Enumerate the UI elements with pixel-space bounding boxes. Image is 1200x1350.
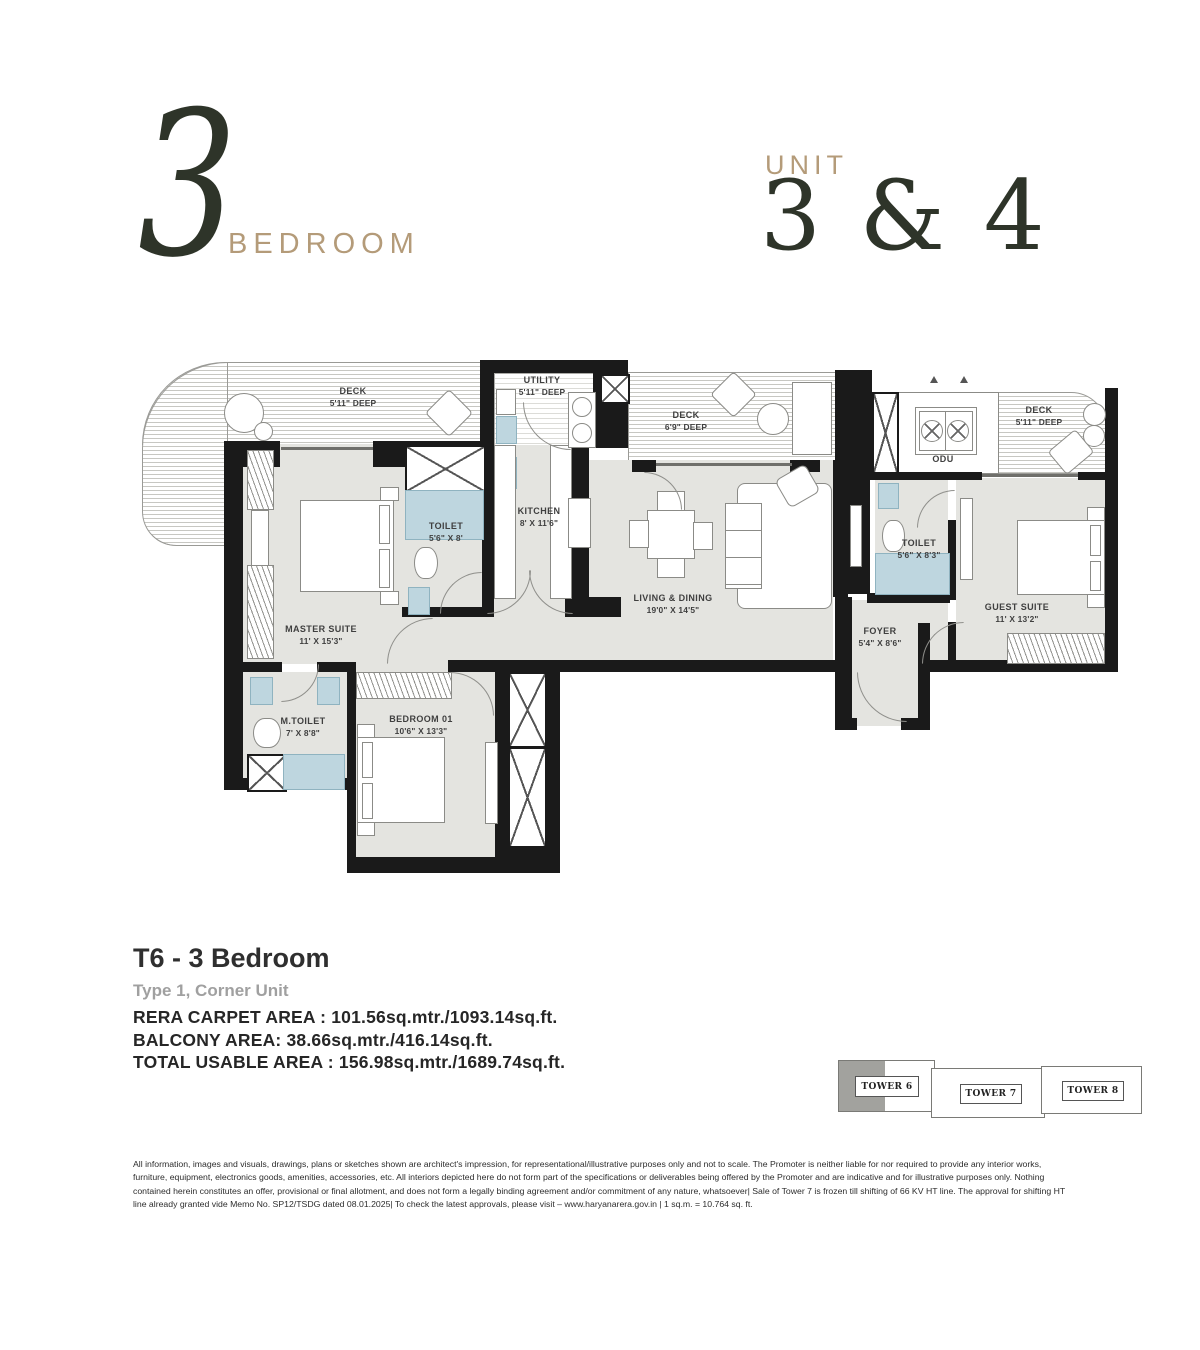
room-label-living-dining: LIVING & DINING19'0" X 14'5" xyxy=(633,593,712,616)
furniture xyxy=(629,520,649,548)
vent-arrow-icon xyxy=(930,376,938,383)
legal-disclaimer: All information, images and visuals, dra… xyxy=(133,1158,1073,1212)
floor-plan: DECK5'11" DEEPUTILITY5'11" DEEPDECK6'9" … xyxy=(140,360,1122,876)
pillow xyxy=(1090,561,1101,592)
area-statement: RERA CARPET AREA : 101.56sq.mtr./1093.14… xyxy=(133,1006,565,1074)
wall xyxy=(1105,388,1118,672)
window-line xyxy=(281,447,373,450)
furniture xyxy=(568,498,591,548)
bed xyxy=(1017,520,1105,595)
shaft-box xyxy=(247,754,287,792)
window-line xyxy=(656,463,792,466)
furniture xyxy=(850,505,862,567)
wall xyxy=(833,460,848,597)
tower-8-footprint: TOWER 8 xyxy=(1041,1066,1142,1114)
furniture xyxy=(251,510,269,566)
big-number-3: 3 xyxy=(138,86,237,286)
furniture xyxy=(657,558,685,578)
room-label-bedroom-01: BEDROOM 0110'6" X 13'3" xyxy=(389,714,453,737)
tower-7-footprint: TOWER 7 xyxy=(931,1068,1045,1118)
plant-or-table xyxy=(1083,403,1106,426)
nightstand xyxy=(380,487,399,501)
wall xyxy=(448,660,497,672)
wall xyxy=(950,472,982,480)
wall xyxy=(835,370,872,473)
nightstand xyxy=(357,822,375,836)
nightstand xyxy=(357,724,375,738)
furniture xyxy=(693,522,713,550)
unit-title: T6 - 3 Bedroom xyxy=(133,943,330,974)
furniture xyxy=(485,742,498,824)
fan-icon xyxy=(947,420,969,442)
tower-8-label: TOWER 8 xyxy=(1062,1081,1124,1101)
washer-drum xyxy=(572,397,592,417)
shaft-box xyxy=(508,672,547,748)
wet-area xyxy=(496,416,517,444)
wet-area xyxy=(878,483,899,509)
room-label-utility: UTILITY5'11" DEEP xyxy=(519,375,566,398)
tower-key-plan: TOWER 6 TOWER 7 TOWER 8 xyxy=(838,1056,1140,1122)
nightstand xyxy=(380,591,399,605)
furniture xyxy=(496,389,516,415)
wall xyxy=(570,445,589,500)
tower-6-label: TOWER 6 xyxy=(855,1076,919,1097)
pillow xyxy=(1090,525,1101,556)
plant-or-table xyxy=(254,422,273,441)
wall xyxy=(373,441,405,467)
wall xyxy=(347,662,356,872)
bed xyxy=(357,737,445,823)
total-usable-area: TOTAL USABLE AREA : 156.98sq.mtr./1689.7… xyxy=(133,1051,565,1074)
balcony-area: BALCONY AREA: 38.66sq.mtr./416.14sq.ft. xyxy=(133,1029,565,1052)
bed xyxy=(300,500,394,592)
wet-area xyxy=(283,754,345,790)
wc-fixture xyxy=(253,718,281,748)
tower-7-label: TOWER 7 xyxy=(960,1084,1022,1104)
room-label-kitchen: KITCHEN8' X 11'6" xyxy=(518,506,561,529)
room-label-toilet-1: TOILET5'6" X 8' xyxy=(429,521,463,544)
wall xyxy=(560,660,836,672)
unit-numbers: 3 & 4 xyxy=(760,168,1049,264)
room-label-guest-suite: GUEST SUITE11' X 13'2" xyxy=(985,602,1049,625)
wet-area xyxy=(317,677,340,705)
wall xyxy=(835,718,857,730)
plant-or-table xyxy=(757,403,789,435)
wall xyxy=(224,441,243,664)
unit-subtitle: Type 1, Corner Unit xyxy=(133,981,289,1001)
room-label-toilet-2: TOILET5'6" X 8'3" xyxy=(898,538,941,561)
sofa xyxy=(725,503,762,589)
furniture xyxy=(960,498,973,580)
pillow xyxy=(362,742,373,778)
wall xyxy=(632,460,656,472)
shaft-box xyxy=(508,747,547,848)
room-label-foyer: FOYER5'4" X 8'6" xyxy=(859,626,902,649)
room-label-odu: ODU xyxy=(932,454,953,466)
washer-drum xyxy=(572,423,592,443)
room-label-master-suite: MASTER SUITE11' X 15'3" xyxy=(285,624,357,647)
furniture xyxy=(792,382,832,455)
vent-arrow-icon xyxy=(960,376,968,383)
wc-fixture xyxy=(414,547,438,579)
bedroom-label: BEDROOM xyxy=(228,228,420,261)
nightstand xyxy=(1087,507,1105,521)
wardrobe xyxy=(247,565,274,659)
wardrobe xyxy=(247,450,274,510)
wardrobe xyxy=(356,672,452,699)
window-line xyxy=(982,474,1078,477)
shaft-box xyxy=(872,392,899,474)
shaft-box xyxy=(405,445,486,493)
wall xyxy=(347,857,499,873)
pillow xyxy=(379,549,390,588)
nightstand xyxy=(1087,594,1105,608)
wall xyxy=(565,597,621,617)
tower-6-footprint: TOWER 6 xyxy=(838,1060,935,1112)
rera-carpet-area: RERA CARPET AREA : 101.56sq.mtr./1093.14… xyxy=(133,1006,565,1029)
room-label-deck-right: DECK5'11" DEEP xyxy=(1016,405,1063,428)
room-label-deck-left: DECK5'11" DEEP xyxy=(330,386,377,409)
pillow xyxy=(379,505,390,544)
room-label-deck-mid: DECK6'9" DEEP xyxy=(665,410,707,433)
room-label-m-toilet: M.TOILET7' X 8'8" xyxy=(280,716,325,739)
deck-area xyxy=(142,362,228,546)
pillow xyxy=(362,783,373,819)
furniture xyxy=(647,510,695,559)
wall xyxy=(835,597,852,718)
brochure-page: { "header": { "big_number": "3", "bedroo… xyxy=(0,0,1200,1350)
shaft-box xyxy=(600,374,630,404)
wet-area xyxy=(250,677,273,705)
plant-or-table xyxy=(1083,425,1105,447)
washer-stack xyxy=(568,392,596,448)
wall xyxy=(1078,472,1105,480)
wet-area xyxy=(408,587,430,615)
wall xyxy=(224,664,243,790)
wardrobe xyxy=(1007,633,1105,664)
fan-icon xyxy=(921,420,943,442)
wall xyxy=(480,370,494,446)
